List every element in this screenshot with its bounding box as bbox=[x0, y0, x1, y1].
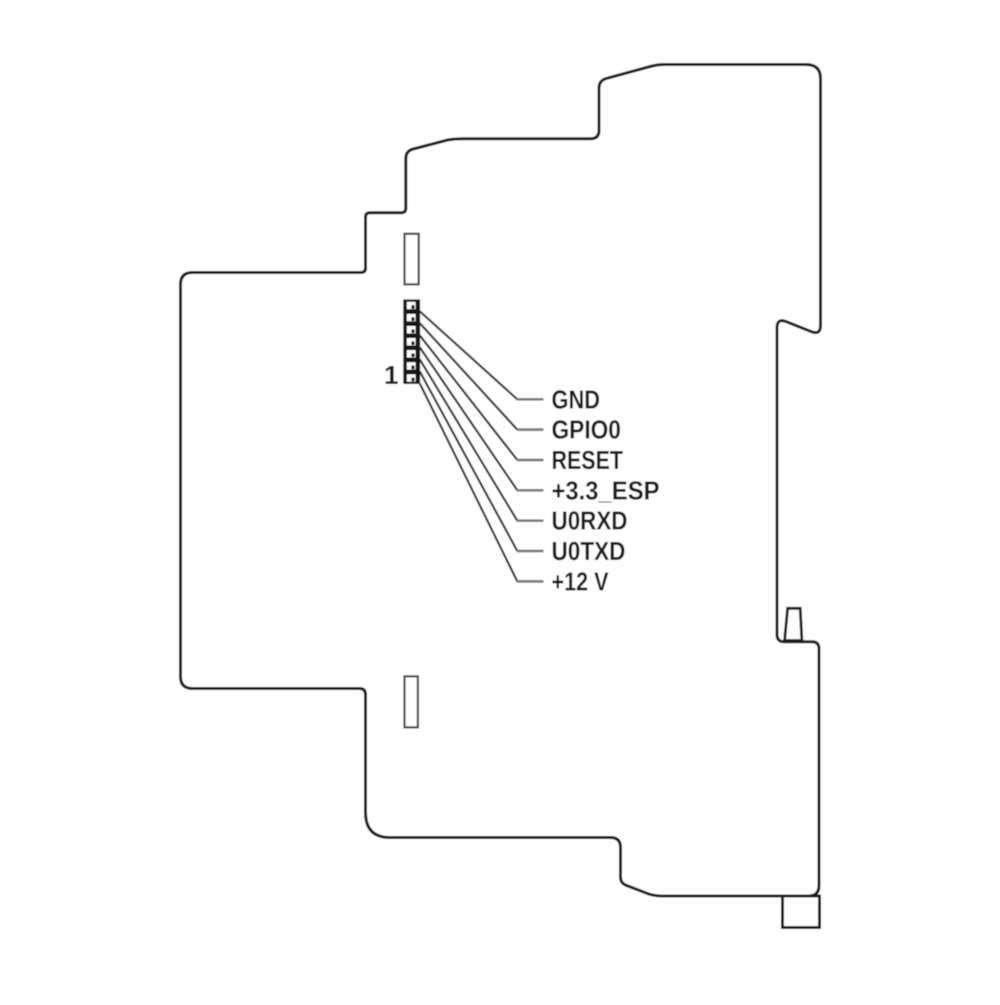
svg-text:GND: GND bbox=[552, 386, 600, 415]
svg-text:1: 1 bbox=[384, 360, 398, 390]
svg-text:+12 V: +12 V bbox=[552, 568, 609, 597]
svg-text:U0TXD: U0TXD bbox=[552, 538, 626, 567]
svg-text:RESET: RESET bbox=[552, 446, 624, 475]
svg-text:GPIO0: GPIO0 bbox=[552, 416, 621, 445]
svg-text:+3.3_ESP: +3.3_ESP bbox=[552, 476, 660, 505]
svg-text:U0RXD: U0RXD bbox=[552, 507, 628, 536]
